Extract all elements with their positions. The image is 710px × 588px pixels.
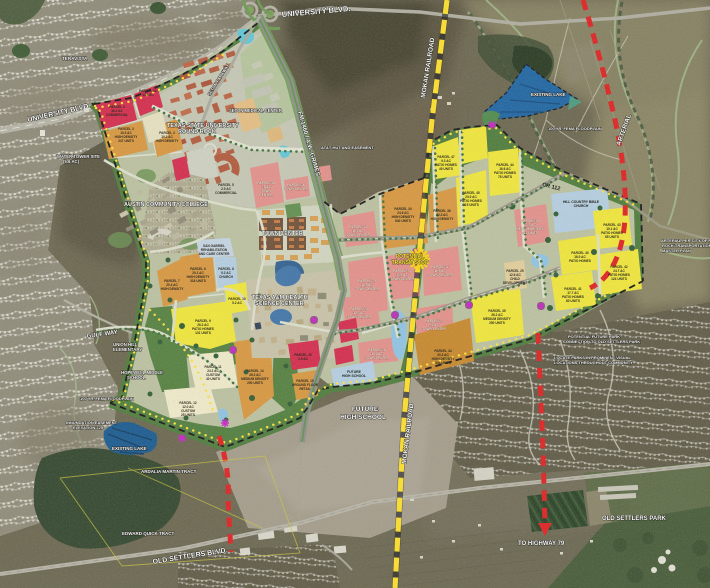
- svg-text:CHURCH: CHURCH: [219, 275, 234, 279]
- svg-text:SETON MEDICAL CENTER: SETON MEDICAL CENTER: [229, 108, 282, 113]
- svg-text:HIGH SCHOOL: HIGH SCHOOL: [340, 414, 386, 421]
- svg-text:SCIENCE CENTER: SCIENCE CENTER: [255, 301, 304, 307]
- svg-text:TOWN CENTER: TOWN CENTER: [284, 187, 308, 191]
- svg-text:AT&T HUT AND EASEMENT: AT&T HUT AND EASEMENT: [321, 145, 374, 150]
- svg-text:TOWN CENTER: TOWN CENTER: [428, 273, 452, 277]
- svg-text:AND CARE CENTER: AND CARE CENTER: [199, 252, 231, 256]
- svg-text:MASTER PLAN: MASTER PLAN: [662, 248, 691, 253]
- svg-text:TOWN CENTER: TOWN CENTER: [422, 327, 446, 331]
- svg-text:343 UNITS: 343 UNITS: [435, 361, 451, 365]
- svg-text:247 UNITS: 247 UNITS: [118, 139, 134, 143]
- svg-text:EDWARD QUICK TRACT: EDWARD QUICK TRACT: [122, 531, 174, 536]
- svg-text:TOWN CENTER: TOWN CENTER: [390, 277, 414, 281]
- svg-text:TO HIGHWAY 79: TO HIGHWAY 79: [518, 541, 565, 547]
- svg-text:ELEVATION 725: ELEVATION 725: [73, 425, 104, 430]
- svg-text:25 UNITS: 25 UNITS: [181, 413, 195, 417]
- svg-text:40 UNITS: 40 UNITS: [206, 377, 220, 381]
- svg-text:12.5 AC: 12.5 AC: [142, 93, 154, 97]
- svg-text:131 UNITS: 131 UNITS: [195, 331, 211, 335]
- svg-text:TOWN CENTER: TOWN CENTER: [346, 233, 370, 237]
- svg-text:HIGH SCHOOL: HIGH SCHOOL: [342, 374, 366, 378]
- svg-text:SCHOOL: SCHOOL: [127, 375, 146, 380]
- svg-text:TOWN CENTER: TOWN CENTER: [347, 315, 371, 319]
- svg-text:TERAVISTA: TERAVISTA: [62, 56, 88, 61]
- svg-text:CONNECTION TO OLD SETTLERS PAR: CONNECTION TO OLD SETTLERS PARK: [563, 339, 640, 344]
- svg-text:CHURCH: CHURCH: [574, 204, 589, 208]
- svg-text:HIGH DENSITY: HIGH DENSITY: [161, 287, 185, 291]
- svg-text:EXISTING LAKE: EXISTING LAKE: [531, 92, 566, 97]
- svg-text:CENTER: CENTER: [259, 193, 273, 197]
- svg-text:OLD SETTLERS PARK: OLD SETTLERS PARK: [602, 516, 667, 522]
- svg-text:TOWN CENTER: TOWN CENTER: [365, 356, 389, 360]
- svg-text:124 UNITS: 124 UNITS: [611, 277, 627, 281]
- svg-text:318 UNITS: 318 UNITS: [190, 279, 206, 283]
- svg-text:100 YR. FEMA FLOODPLAIN: 100 YR. FEMA FLOODPLAIN: [80, 396, 134, 401]
- svg-text:ARDALIA MARTIN TRACT: ARDALIA MARTIN TRACT: [141, 469, 197, 474]
- svg-text:COMMERCIAL: COMMERCIAL: [106, 113, 128, 117]
- svg-text:212 UNITS: 212 UNITS: [522, 231, 538, 235]
- svg-text:TOWN CENTER: TOWN CENTER: [262, 231, 303, 237]
- svg-text:78 UNITS: 78 UNITS: [498, 175, 512, 179]
- svg-text:49 UNITS: 49 UNITS: [439, 167, 453, 171]
- svg-text:LOCATIONS THROUGHOUT COMMUNITY: LOCATIONS THROUGHOUT COMMUNITY: [554, 360, 633, 365]
- svg-text:RETAIL: RETAIL: [299, 387, 310, 391]
- svg-text:ELEMENTARY: ELEMENTARY: [113, 347, 142, 352]
- svg-text:TOWN CENTER: TOWN CENTER: [355, 287, 379, 291]
- svg-text:250 UNITS: 250 UNITS: [489, 321, 505, 325]
- svg-text:(5.6 AC): (5.6 AC): [63, 159, 80, 164]
- svg-text:COMMERCIAL: COMMERCIAL: [215, 191, 237, 195]
- svg-text:AUSTIN COMMUNITY COLLEGE: AUSTIN COMMUNITY COLLEGE: [124, 202, 208, 208]
- svg-text:65 UNITS: 65 UNITS: [605, 235, 619, 239]
- svg-text:100 YR. FEMA FLOODPLAIN: 100 YR. FEMA FLOODPLAIN: [548, 126, 602, 131]
- svg-text:FUTURE: FUTURE: [352, 406, 379, 413]
- svg-text:640 UNITS: 640 UNITS: [395, 219, 411, 223]
- svg-text:DEVELOPMENT: DEVELOPMENT: [503, 281, 527, 285]
- svg-text:PATIO HOMES: PATIO HOMES: [569, 259, 591, 263]
- svg-text:2.9 AC: 2.9 AC: [298, 357, 308, 361]
- svg-text:5.2 AC: 5.2 AC: [232, 301, 242, 305]
- svg-text:80 UNITS: 80 UNITS: [566, 299, 580, 303]
- svg-text:TRANSIT STOP: TRANSIT STOP: [392, 260, 429, 266]
- svg-text:ROUND ROCK: ROUND ROCK: [178, 129, 216, 135]
- svg-text:HIGH DENSITY: HIGH DENSITY: [156, 139, 180, 143]
- svg-text:115 UNITS: 115 UNITS: [463, 203, 479, 207]
- svg-text:HIGH DENSITY: HIGH DENSITY: [431, 217, 455, 221]
- svg-text:EXISTING LAKE: EXISTING LAKE: [112, 446, 147, 451]
- svg-text:200 UNITS: 200 UNITS: [247, 381, 263, 385]
